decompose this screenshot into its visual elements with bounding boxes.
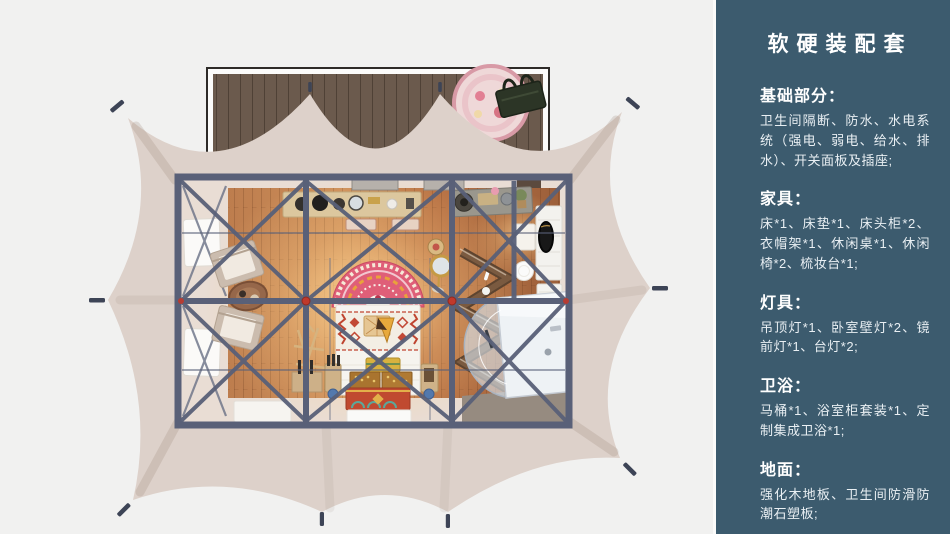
slide: 软硬装配套 基础部分： 卫生间隔断、防水、水电系统（强电、弱电、给水、排水）、开…	[0, 0, 950, 534]
floorplan-svg	[0, 0, 713, 534]
section-bathroom: 卫浴： 马桶*1、浴室柜套装*1、定制集成卫浴*1;	[760, 372, 930, 441]
section-body: 卫生间隔断、防水、水电系统（强电、弱电、给水、排水）、开关面板及插座;	[760, 111, 930, 170]
section-heading: 卫浴：	[760, 372, 930, 396]
spec-sidebar: 软硬装配套 基础部分： 卫生间隔断、防水、水电系统（强电、弱电、给水、排水）、开…	[713, 0, 950, 534]
bowl	[482, 287, 490, 295]
section-body: 吊顶灯*1、卧室壁灯*2、镜前灯*1、台灯*2;	[760, 318, 930, 358]
stake	[320, 512, 324, 526]
section-heading: 地面：	[760, 456, 930, 480]
stake	[446, 514, 450, 528]
section-heading: 基础部分：	[760, 82, 930, 106]
room	[178, 174, 569, 430]
section-furniture: 家具： 床*1、床垫*1、床头柜*2、衣帽架*1、休闲桌*1、休闲椅*2、梳妆台…	[760, 185, 930, 273]
section-flooring: 地面： 强化木地板、卫生间防滑防潮石塑板;	[760, 456, 930, 525]
bed-quilt-band	[336, 312, 420, 350]
hook	[308, 82, 312, 92]
flowers	[491, 187, 499, 195]
hook	[438, 82, 442, 92]
section-lighting: 灯具： 吊顶灯*1、卧室壁灯*2、镜前灯*1、台灯*2;	[760, 289, 930, 358]
ceiling-vent	[352, 179, 398, 190]
stake	[89, 298, 105, 303]
stake	[652, 286, 668, 291]
section-body: 马桶*1、浴室柜套装*1、定制集成卫浴*1;	[760, 401, 930, 441]
dish	[387, 199, 397, 209]
table-mirror	[349, 196, 363, 210]
section-heading: 家具：	[760, 185, 930, 209]
plant-pot	[517, 200, 526, 208]
tent-floorplan-illustration	[0, 0, 713, 534]
floor-mat	[234, 401, 291, 422]
shower-drain	[545, 349, 552, 356]
accessory	[406, 198, 414, 209]
jewelry-box	[368, 197, 380, 204]
section-basics: 基础部分： 卫生间隔断、防水、水电系统（强电、弱电、给水、排水）、开关面板及插座…	[760, 82, 930, 170]
kettle	[501, 193, 514, 206]
bottle	[298, 360, 301, 374]
section-body: 床*1、床垫*1、床头柜*2、衣帽架*1、休闲桌*1、休闲椅*2、梳妆台*1;	[760, 214, 930, 273]
sidebar-title: 软硬装配套	[742, 28, 930, 58]
section-body: 强化木地板、卫生间防滑防潮石塑板;	[760, 485, 930, 525]
section-heading: 灯具：	[760, 289, 930, 313]
round-tray-center	[433, 244, 440, 251]
bottle	[310, 360, 313, 374]
